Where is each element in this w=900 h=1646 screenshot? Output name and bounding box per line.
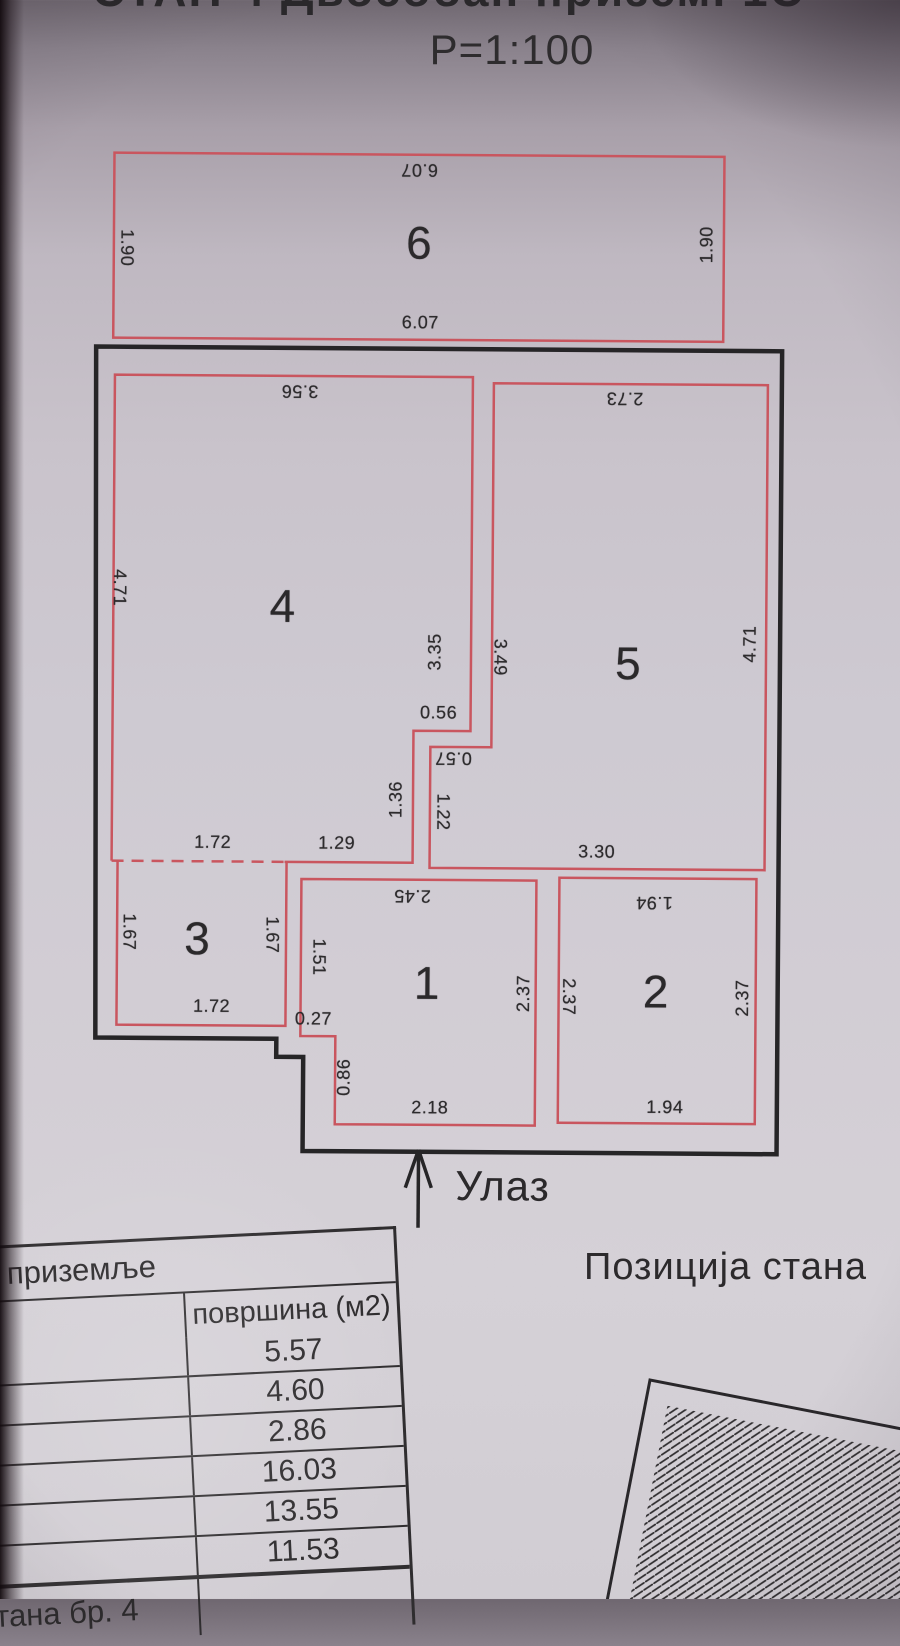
dim-label: 1.29 <box>318 833 355 854</box>
position-diagram <box>590 1350 900 1599</box>
dim-label: 1.94 <box>636 892 673 913</box>
dim-label: 3.35 <box>424 633 445 670</box>
dim-label: 1.67 <box>118 913 139 950</box>
position-title: Позиција стана <box>584 1246 867 1289</box>
dim-label: 6.07 <box>401 159 438 180</box>
dim-label: 1.72 <box>193 996 230 1017</box>
dim-label: 1.22 <box>432 793 453 830</box>
dim-label: 6.07 <box>402 312 439 333</box>
room-5-outline <box>430 383 768 870</box>
table-footer-label: стана бр. 4 <box>0 1579 200 1646</box>
room-number: 4 <box>269 579 295 633</box>
dim-label: 1.72 <box>194 832 231 853</box>
dim-label: 1.51 <box>308 938 329 975</box>
dim-label: 1.94 <box>646 1097 683 1118</box>
table-footer-area <box>197 1569 412 1635</box>
hatched-area <box>604 1406 900 1599</box>
dim-label: 0.57 <box>435 747 472 768</box>
dim-label: 4.71 <box>109 569 130 606</box>
dim-label: 1.90 <box>116 229 137 266</box>
room-number: 5 <box>615 636 641 690</box>
room-number: 1 <box>414 956 440 1010</box>
dim-label: 3.56 <box>281 380 318 401</box>
dim-label: 2.37 <box>732 979 753 1016</box>
area-table: приземље површина (м2) 5.574.602.8616.03… <box>0 1226 415 1646</box>
dim-label: 1.67 <box>261 916 282 953</box>
photographed-floor-plan-page: { "title": { "text": "СТАН 4 Двособан пр… <box>0 0 900 1599</box>
dim-label: 3.49 <box>489 639 510 676</box>
room-number: 2 <box>643 964 669 1018</box>
room-number: 6 <box>406 216 432 270</box>
dim-label: 2.18 <box>411 1097 448 1118</box>
dim-label: 3.30 <box>578 841 615 862</box>
dim-label: 2.73 <box>606 388 643 409</box>
table-body: 5.574.602.8616.0313.5511.53 <box>0 1327 410 1586</box>
dim-label: 1.90 <box>696 226 717 263</box>
dim-label: 0.56 <box>420 702 457 723</box>
building-footprint <box>590 1380 900 1599</box>
dim-label: 1.36 <box>385 781 406 818</box>
dim-label: 0.27 <box>295 1008 332 1029</box>
dim-label: 2.37 <box>513 975 534 1012</box>
dim-label: 2.37 <box>558 978 579 1015</box>
dim-label: 2.45 <box>394 885 431 906</box>
dim-label: 0.86 <box>333 1059 354 1096</box>
dashed-wall <box>112 861 285 862</box>
dim-label: 4.71 <box>739 625 760 662</box>
entrance-arrow-icon <box>405 1150 432 1228</box>
room-number: 3 <box>184 911 210 965</box>
entrance-label: Улаз <box>455 1162 550 1211</box>
